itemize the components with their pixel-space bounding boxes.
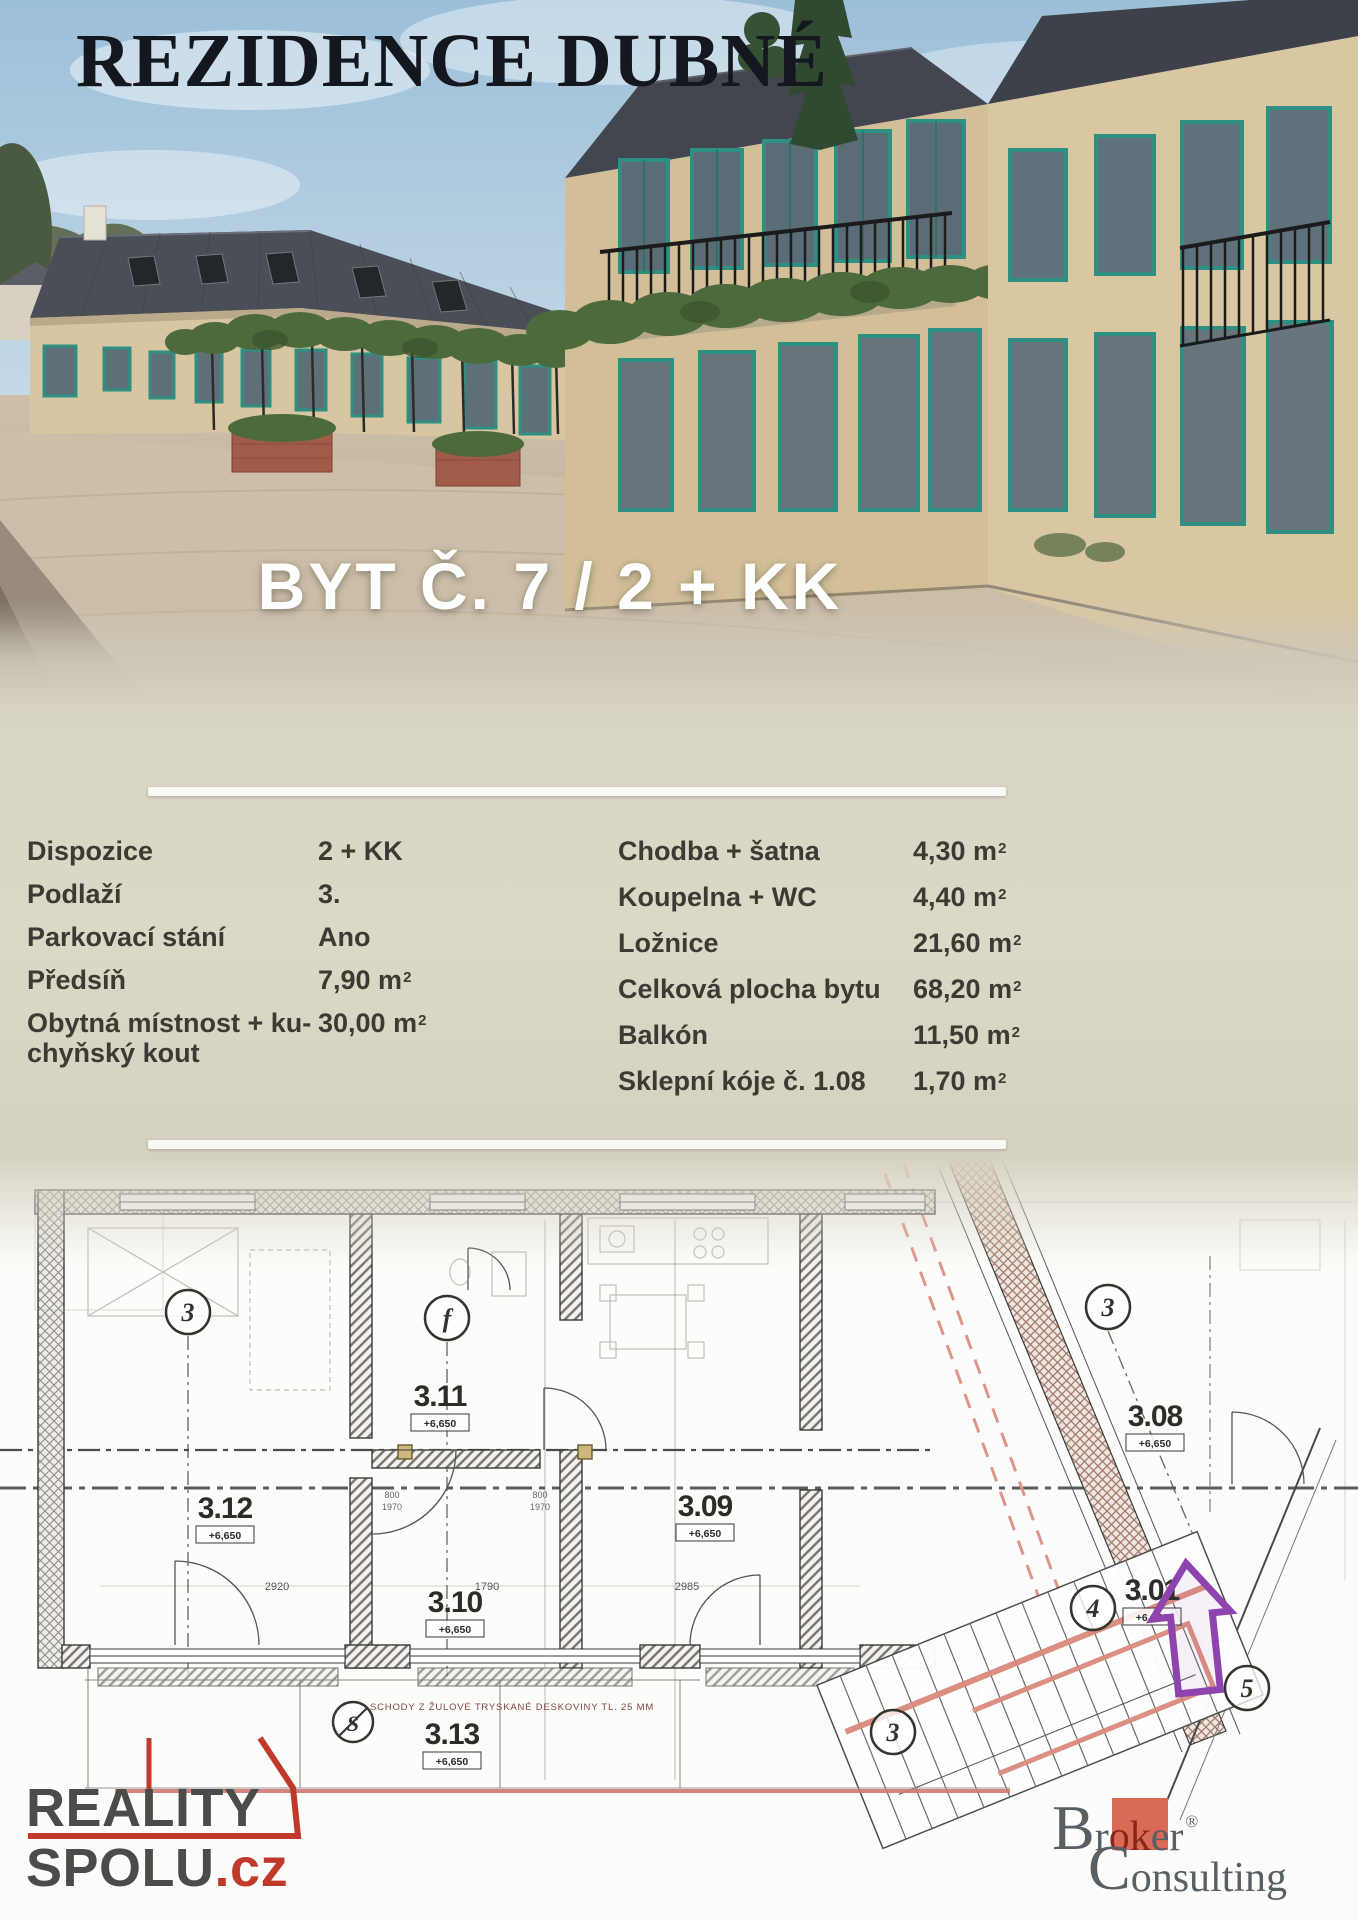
page-title: REZIDENCE DUBNÉ xyxy=(76,18,828,105)
spec-value: 30,00 m2 xyxy=(318,1008,426,1038)
svg-text:5: 5 xyxy=(1241,1674,1254,1703)
svg-text:3: 3 xyxy=(1101,1293,1115,1322)
svg-text:1790: 1790 xyxy=(475,1581,499,1593)
spec-label: Koupelna + WC xyxy=(618,882,913,912)
plan-top-fade xyxy=(0,1160,1358,1268)
spec-value: 3. xyxy=(318,879,342,909)
svg-text:800: 800 xyxy=(532,1490,547,1500)
svg-text:+6,650: +6,650 xyxy=(209,1530,242,1542)
svg-text:3.12: 3.12 xyxy=(198,1492,253,1525)
svg-text:+6,650: +6,650 xyxy=(424,1418,457,1430)
spolu-wordmark: SPOLU.cz xyxy=(26,1838,288,1898)
spec-row: Obytná místnost + ku-chyňský kout 30,00 … xyxy=(27,1008,602,1068)
section-marker: S xyxy=(333,1702,373,1742)
stair-note: SCHODY Z ŽULOVÉ TRYSKANÉ DESKOVINY TL. 2… xyxy=(370,1702,654,1713)
svg-text:4: 4 xyxy=(1086,1594,1100,1623)
spec-label: Balkón xyxy=(618,1020,913,1050)
svg-text:+6,650: +6,650 xyxy=(1139,1438,1172,1450)
svg-text:3: 3 xyxy=(886,1718,900,1747)
svg-text:1970: 1970 xyxy=(530,1502,550,1512)
spec-row: Ložnice 21,60 m2 xyxy=(618,928,1228,958)
spec-row: Podlaží 3. xyxy=(27,879,602,909)
spec-row: Parkovací stání Ano xyxy=(27,922,602,952)
spec-label: Ložnice xyxy=(618,928,913,958)
spec-label: Předsíň xyxy=(27,965,318,995)
broker-c: C xyxy=(1088,1842,1131,1894)
divider-bar-bottom xyxy=(148,1140,1006,1149)
svg-text:3.13: 3.13 xyxy=(425,1718,480,1751)
room-label: 3.10 +6,650 xyxy=(426,1586,484,1637)
grid-bubble: 3 xyxy=(1086,1285,1130,1329)
svg-text:3: 3 xyxy=(181,1298,195,1327)
registered-mark: ® xyxy=(1185,1815,1198,1829)
consulting-wordmark: Consulting xyxy=(1088,1842,1287,1894)
divider-bar-top xyxy=(148,787,1006,796)
grid-bubble: 3 xyxy=(166,1290,210,1334)
grid-bubble: f xyxy=(425,1296,469,1340)
spec-value: 1,70 m2 xyxy=(913,1066,1006,1096)
cz-suffix: .cz xyxy=(215,1838,289,1898)
spec-value: 68,20 m2 xyxy=(913,974,1021,1004)
spec-row: Balkón 11,50 m2 xyxy=(618,1020,1228,1050)
spec-label: Sklepní kóje č. 1.08 xyxy=(618,1066,913,1096)
svg-text:+6,650: +6,650 xyxy=(689,1528,722,1540)
spec-label: Celková plocha bytu xyxy=(618,974,913,1004)
spec-value: 7,90 m2 xyxy=(318,965,411,995)
spec-row: Koupelna + WC 4,40 m2 xyxy=(618,882,1228,912)
spec-value: 4,40 m2 xyxy=(913,882,1006,912)
room-label: 3.12 +6,650 xyxy=(196,1492,254,1543)
spec-value: Ano xyxy=(318,922,371,952)
flyer-page: REZIDENCE DUBNÉ BYT Č. 7 / 2 + KK Dispoz… xyxy=(0,0,1358,1920)
unit-heading: BYT Č. 7 / 2 + KK xyxy=(0,548,1100,624)
svg-text:800: 800 xyxy=(384,1490,399,1500)
spec-row: Předsíň 7,90 m2 xyxy=(27,965,602,995)
spec-row: Celková plocha bytu 68,20 m2 xyxy=(618,974,1228,1004)
spec-label: Obytná místnost + ku-chyňský kout xyxy=(27,1008,318,1068)
chimney xyxy=(84,206,106,240)
grid-bubble: 5 xyxy=(1225,1666,1269,1710)
svg-text:3.09: 3.09 xyxy=(678,1490,733,1523)
broker-onsulting: onsulting xyxy=(1131,1861,1287,1895)
svg-text:S: S xyxy=(347,1711,359,1736)
svg-text:3.11: 3.11 xyxy=(414,1380,467,1413)
spec-column-left: Dispozice 2 + KK Podlaží 3. Parkovací st… xyxy=(27,836,602,1081)
broker-consulting-logo: Broker® Consulting xyxy=(1052,1802,1287,1895)
room-label: 3.08 +6,650 xyxy=(1126,1400,1184,1451)
spec-label: Parkovací stání xyxy=(27,922,318,952)
door-post xyxy=(578,1445,592,1459)
door-post xyxy=(398,1445,412,1459)
spec-label: Podlaží xyxy=(27,879,318,909)
dimension-texts: 2920 1790 2985 800 1970 800 1970 xyxy=(265,1490,699,1593)
room-label: 3.09 +6,650 xyxy=(676,1490,734,1541)
grid-bubble: 3 xyxy=(871,1710,915,1754)
spec-column-right: Chodba + šatna 4,30 m2 Koupelna + WC 4,4… xyxy=(618,836,1228,1112)
svg-text:2985: 2985 xyxy=(675,1581,699,1593)
svg-text:1970: 1970 xyxy=(382,1502,402,1512)
spec-value: 4,30 m2 xyxy=(913,836,1006,866)
spec-row: Sklepní kóje č. 1.08 1,70 m2 xyxy=(618,1066,1228,1096)
spec-row: Chodba + šatna 4,30 m2 xyxy=(618,836,1228,866)
spec-value: 21,60 m2 xyxy=(913,928,1021,958)
reality-wordmark: REALITY xyxy=(26,1778,288,1838)
spec-label: Chodba + šatna xyxy=(618,836,913,866)
room-label: 3.13 +6,650 xyxy=(423,1718,481,1769)
svg-text:+6,650: +6,650 xyxy=(436,1756,469,1768)
grid-bubble: 4 xyxy=(1071,1586,1115,1630)
spec-row: Dispozice 2 + KK xyxy=(27,836,602,866)
spec-value: 2 + KK xyxy=(318,836,404,866)
spec-value: 11,50 m2 xyxy=(913,1020,1020,1050)
svg-text:2920: 2920 xyxy=(265,1581,289,1593)
svg-text:3.08: 3.08 xyxy=(1128,1400,1183,1433)
room-label: 3.11 +6,650 xyxy=(411,1380,469,1431)
svg-text:+6,650: +6,650 xyxy=(439,1624,472,1636)
reality-spolu-logo: REALITY SPOLU.cz xyxy=(26,1778,288,1898)
spec-label: Dispozice xyxy=(27,836,318,866)
